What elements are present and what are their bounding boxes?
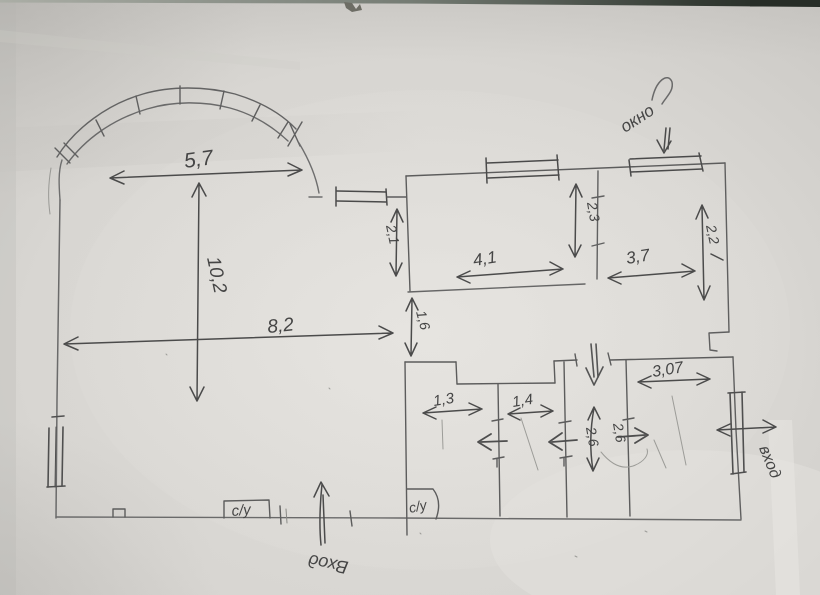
svg-text:1,4: 1,4: [511, 391, 534, 411]
svg-text:3,7: 3,7: [625, 245, 652, 268]
svg-text:с/у: с/у: [231, 501, 253, 520]
svg-text:1,3: 1,3: [432, 390, 456, 410]
svg-text:4,1: 4,1: [472, 247, 498, 269]
svg-text:5,7: 5,7: [182, 146, 215, 173]
svg-text:8,2: 8,2: [266, 314, 295, 338]
